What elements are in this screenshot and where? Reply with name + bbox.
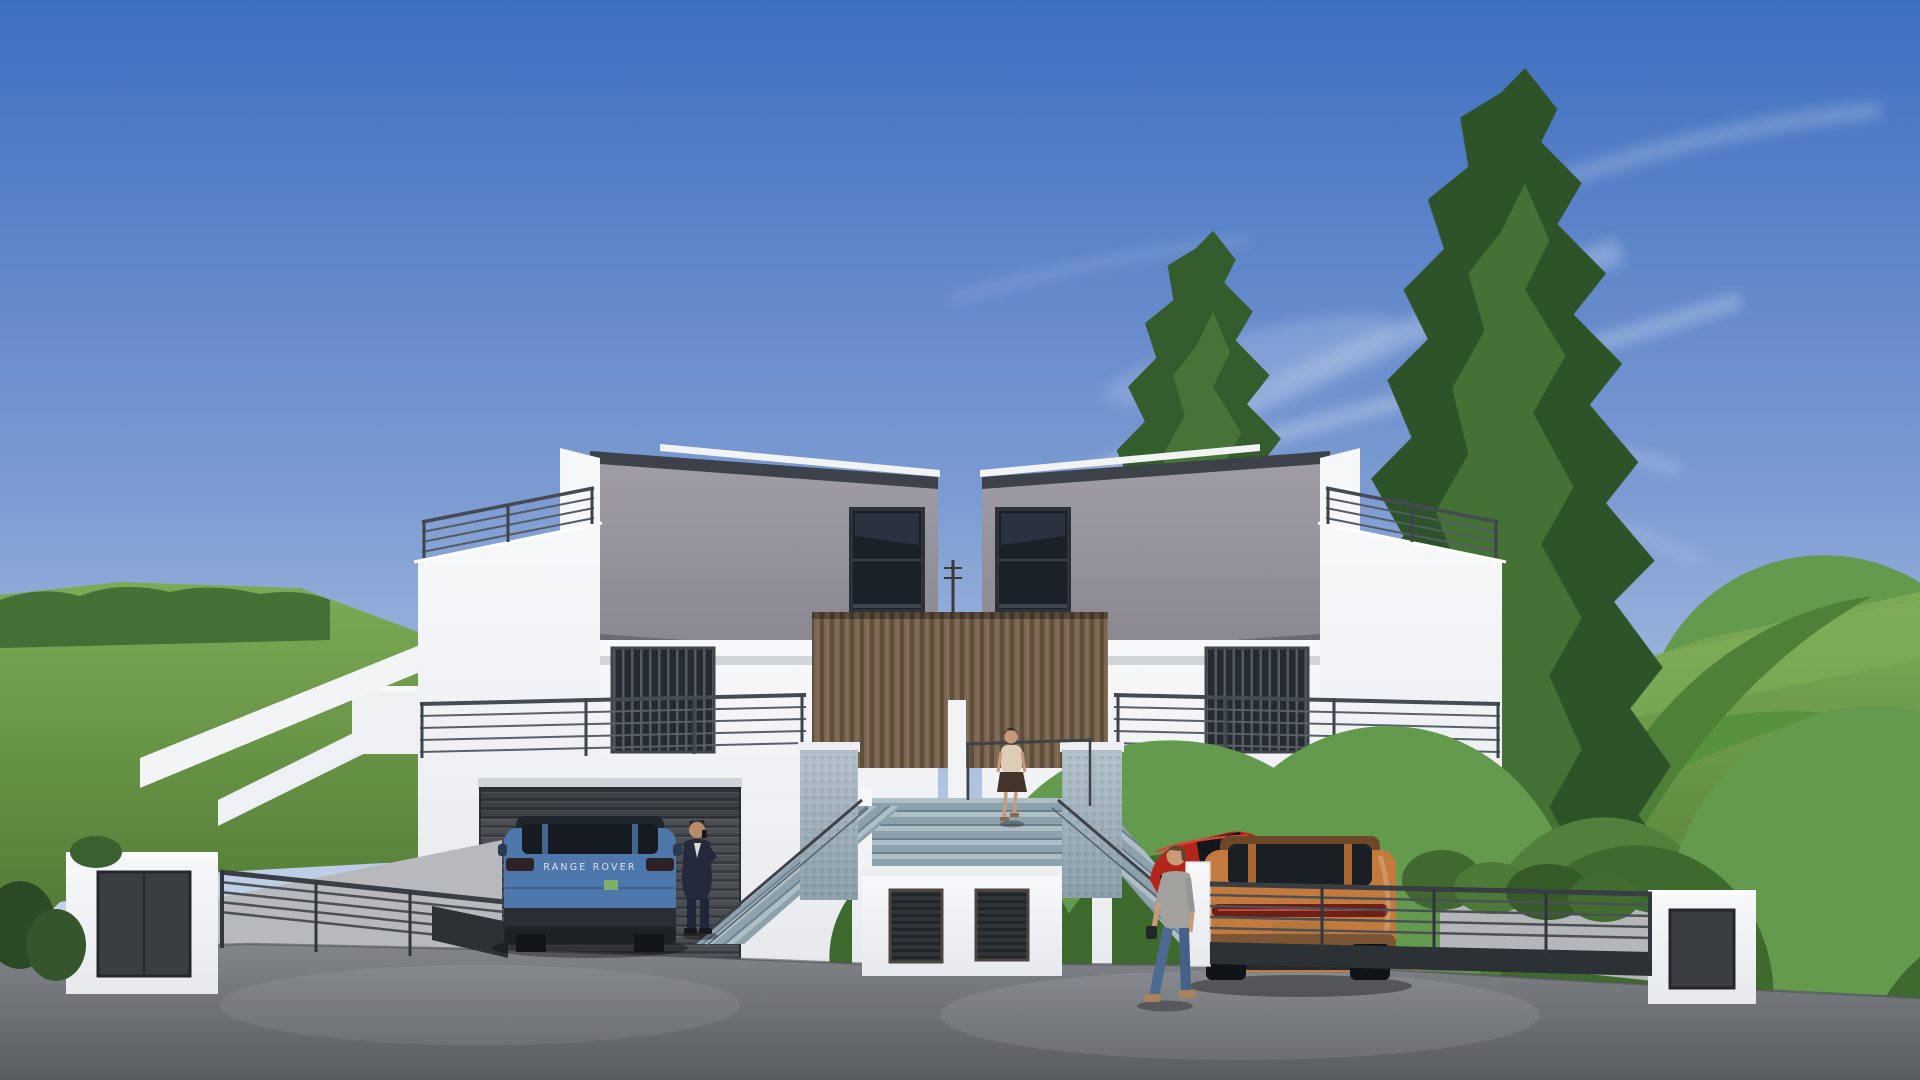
stone-planter-left bbox=[798, 742, 860, 900]
utility-box-right bbox=[1648, 890, 1756, 1004]
stone-planter-right bbox=[1060, 742, 1124, 898]
stair-post bbox=[948, 700, 966, 812]
render-canvas: RANGE ROVER bbox=[0, 0, 1920, 1080]
louver-panel-2 bbox=[976, 890, 1028, 960]
blue-suv: RANGE ROVER bbox=[492, 816, 688, 958]
utility-wall-center bbox=[862, 866, 1062, 976]
utility-box-left bbox=[66, 852, 218, 994]
suv-badge: RANGE ROVER bbox=[543, 862, 636, 873]
louver-panel-1 bbox=[890, 890, 942, 962]
